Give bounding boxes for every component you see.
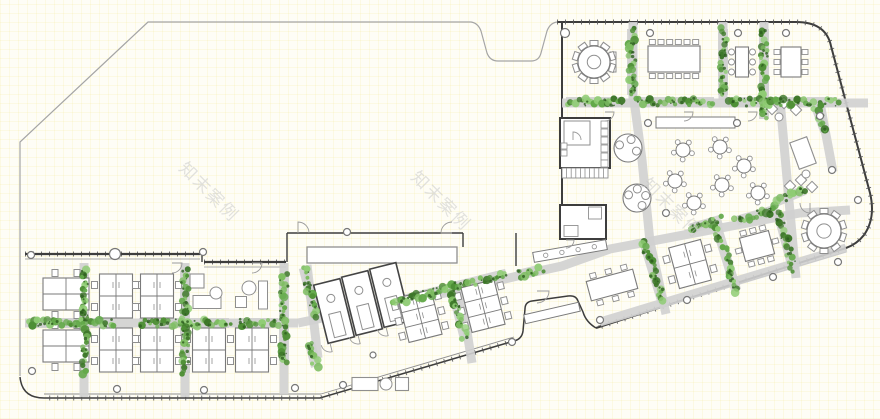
structural-column xyxy=(344,229,351,236)
desk-cluster xyxy=(185,328,234,372)
structural-column xyxy=(597,317,604,324)
furniture-rect xyxy=(236,297,247,308)
structural-column xyxy=(28,252,35,259)
conference-table xyxy=(729,47,756,77)
cafe-table-large xyxy=(614,134,642,162)
floor-plan: 知末案例知末案例知末案例 xyxy=(0,0,880,419)
structural-column xyxy=(783,30,790,37)
cafe-table xyxy=(746,183,769,205)
watermark-text: 知末案例 xyxy=(175,159,243,227)
conference-table xyxy=(731,222,783,269)
structural-column xyxy=(855,197,862,204)
desk-cluster xyxy=(228,328,277,372)
furniture-rect xyxy=(396,378,409,391)
cafe-table xyxy=(708,137,731,159)
floor-plan-canvas: 知末案例知末案例知末案例 xyxy=(0,0,880,419)
cafe-table xyxy=(671,140,694,162)
conference-table xyxy=(774,47,808,77)
structural-column xyxy=(647,30,654,37)
wall-segment xyxy=(321,337,514,394)
furniture-circle xyxy=(802,170,810,178)
structural-column xyxy=(340,382,347,389)
desk-cluster xyxy=(661,237,719,290)
structural-column xyxy=(735,30,742,37)
structural-column xyxy=(370,352,376,358)
cafe-table xyxy=(710,175,733,197)
furniture-rect xyxy=(307,247,457,263)
furniture-rect xyxy=(601,121,608,128)
round-conference-table xyxy=(801,209,846,254)
furniture-circle xyxy=(242,281,256,295)
counter xyxy=(656,117,735,128)
furniture-rect xyxy=(190,274,204,288)
furniture-rect xyxy=(601,160,608,167)
stairs xyxy=(562,168,608,178)
structural-column xyxy=(770,274,777,281)
furniture-rect xyxy=(259,281,268,309)
furniture-rect xyxy=(601,145,608,152)
conference-table xyxy=(585,263,640,307)
furniture-rect xyxy=(561,143,567,149)
cafe-table xyxy=(732,156,755,178)
structural-column xyxy=(110,249,121,260)
counter xyxy=(524,302,581,323)
structural-column xyxy=(835,259,842,266)
furniture-rect xyxy=(790,137,816,169)
furniture-rect xyxy=(352,378,378,391)
structural-column xyxy=(292,385,299,392)
furniture-rect xyxy=(601,153,608,160)
furniture-circle xyxy=(380,378,392,390)
furniture-circle xyxy=(775,113,783,121)
structural-column xyxy=(561,29,570,38)
conference-table xyxy=(648,40,700,79)
structural-column xyxy=(114,386,121,393)
furniture-rect xyxy=(564,226,578,237)
door-arc xyxy=(748,112,757,121)
furniture-rect xyxy=(561,150,567,156)
furniture-rect xyxy=(601,137,608,144)
round-conference-table xyxy=(572,41,615,84)
desk-cluster xyxy=(92,328,141,372)
structural-column xyxy=(509,339,516,346)
structural-column xyxy=(201,387,208,394)
furniture-rect xyxy=(601,129,608,136)
structural-column xyxy=(829,167,836,174)
furniture-rect xyxy=(589,207,602,219)
structural-column xyxy=(817,113,824,120)
door-arc xyxy=(298,222,309,233)
furniture-rect xyxy=(806,181,817,192)
desk-cluster xyxy=(133,328,182,372)
door-arc xyxy=(321,343,332,354)
structural-column xyxy=(645,120,652,127)
desk-cluster xyxy=(92,274,141,318)
hedge-planter xyxy=(516,262,547,282)
structural-column xyxy=(29,368,36,375)
door-arc xyxy=(537,291,549,303)
structural-column xyxy=(200,249,207,256)
structural-column xyxy=(684,297,691,304)
furniture-circle xyxy=(210,287,222,299)
structural-column xyxy=(734,120,741,127)
watermark-text: 知末案例 xyxy=(407,168,475,236)
desk-cluster xyxy=(133,274,182,318)
